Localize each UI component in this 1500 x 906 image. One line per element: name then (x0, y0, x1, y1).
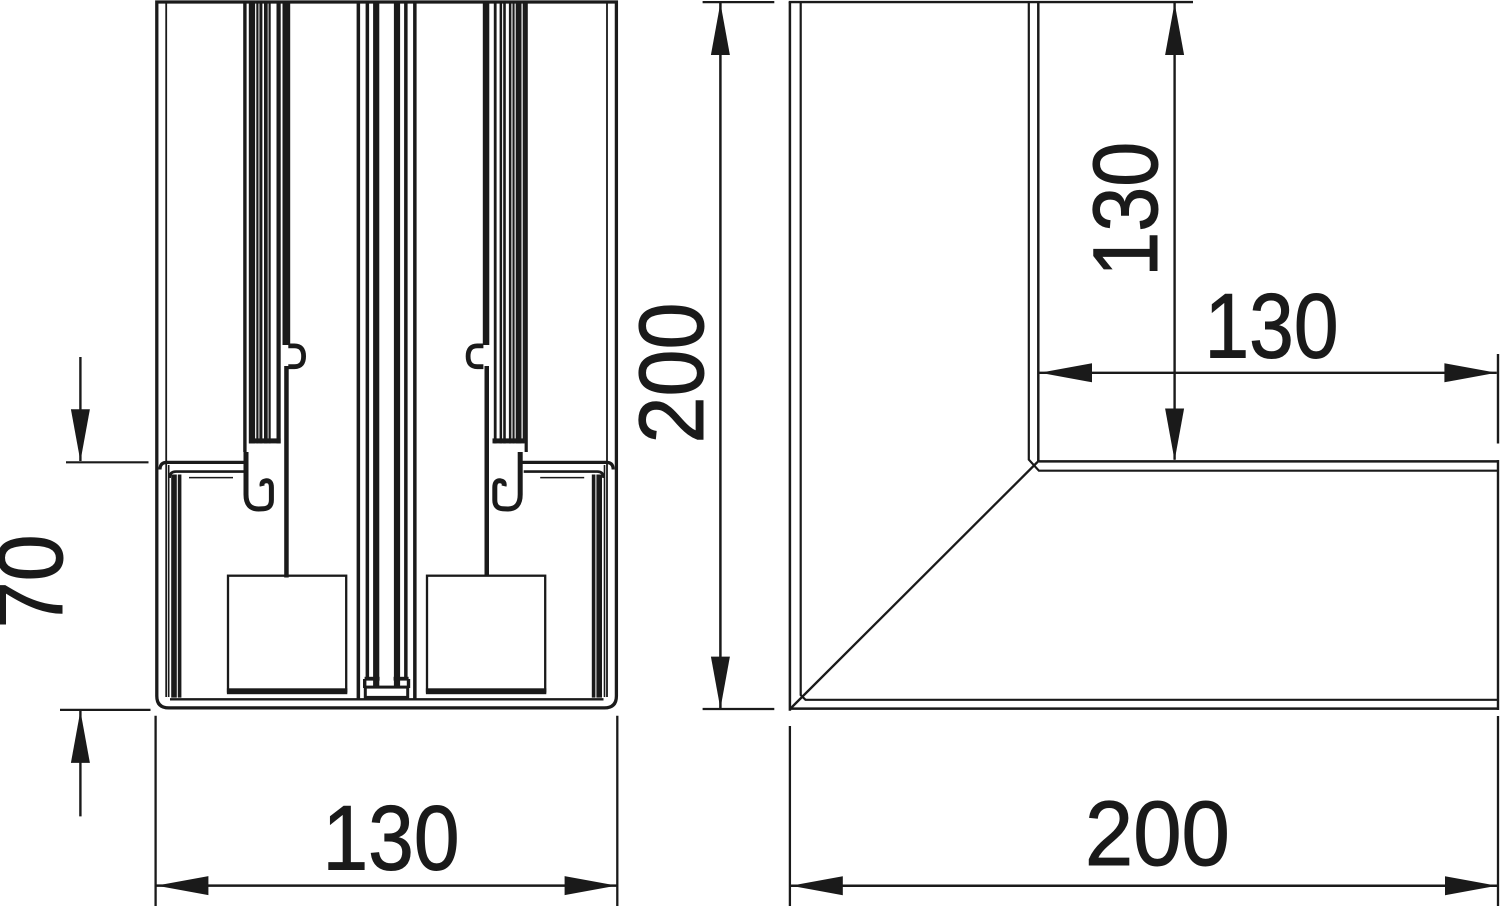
svg-text:130: 130 (1075, 142, 1177, 277)
svg-text:200: 200 (621, 303, 723, 444)
svg-text:200: 200 (1085, 783, 1230, 885)
svg-text:130: 130 (1205, 276, 1339, 378)
svg-text:130: 130 (323, 788, 460, 890)
svg-text:70: 70 (0, 534, 82, 628)
